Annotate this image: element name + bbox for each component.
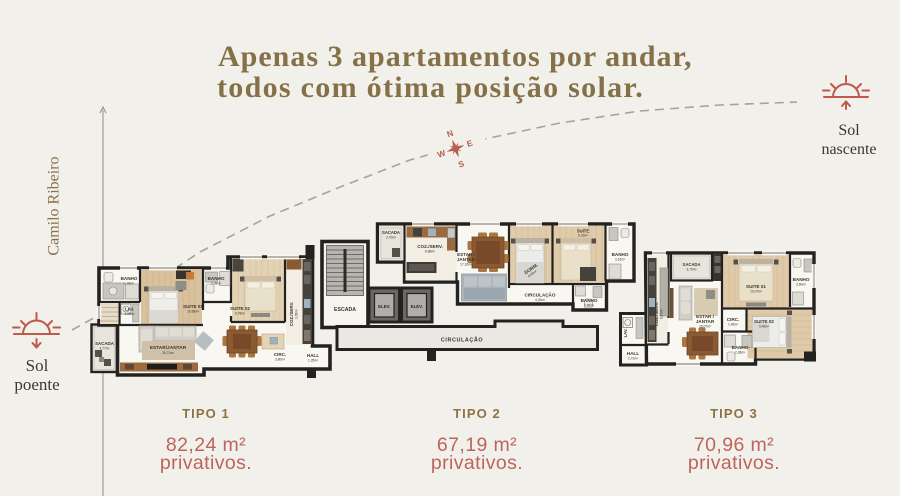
svg-text:10,07m²: 10,07m² [750, 290, 762, 294]
svg-text:Camilo Ribeiro: Camilo Ribeiro [46, 156, 63, 255]
svg-text:BANHO: BANHO [581, 298, 598, 303]
svg-text:BANHO: BANHO [121, 276, 138, 281]
svg-text:BANHO: BANHO [208, 276, 225, 281]
svg-text:LAV.: LAV. [623, 329, 628, 338]
svg-text:SACADA: SACADA [95, 341, 115, 346]
svg-text:3,80m²: 3,80m² [275, 358, 285, 362]
svg-text:HALL: HALL [307, 353, 319, 358]
svg-text:COZ./SERV.: COZ./SERV. [289, 302, 294, 326]
svg-text:3,08m²: 3,08m² [211, 282, 221, 286]
svg-text:privativos.: privativos. [431, 452, 523, 474]
svg-text:ELEV.: ELEV. [378, 304, 390, 309]
svg-text:nascente: nascente [821, 141, 876, 158]
svg-text:8,47m²: 8,47m² [660, 309, 664, 319]
svg-text:8,88m²: 8,88m² [425, 250, 435, 254]
svg-text:16,07m²: 16,07m² [699, 325, 711, 329]
svg-text:3,70m²: 3,70m² [687, 268, 697, 272]
svg-text:9,16m²: 9,16m² [578, 234, 588, 238]
svg-text:Apenas 3 apartamentos por anda: Apenas 3 apartamentos por andar, [218, 40, 693, 73]
svg-text:SUITE 02: SUITE 02 [754, 319, 774, 324]
svg-text:COZ./SERV.: COZ./SERV. [417, 244, 443, 249]
svg-text:poente: poente [14, 375, 59, 394]
svg-text:2,86m²: 2,86m² [584, 304, 594, 308]
svg-text:9,46m²: 9,46m² [759, 325, 769, 329]
svg-text:CIRCULAÇÃO: CIRCULAÇÃO [525, 292, 556, 298]
svg-text:10,68m²: 10,68m² [187, 310, 199, 314]
svg-text:COZ./SERV.: COZ./SERV. [654, 302, 659, 326]
svg-text:9,78m²: 9,78m² [235, 312, 245, 316]
svg-text:2,36m²: 2,36m² [735, 351, 745, 355]
svg-text:1,46m²: 1,46m² [728, 323, 738, 327]
svg-text:todos com ótima posição solar.: todos com ótima posição solar. [217, 71, 644, 104]
svg-text:BANHO: BANHO [732, 345, 749, 350]
svg-text:SUITE 01: SUITE 01 [183, 304, 203, 309]
svg-text:3,16m²: 3,16m² [615, 258, 625, 262]
svg-text:4,02m²: 4,02m² [535, 298, 545, 302]
svg-text:Sol: Sol [26, 356, 49, 375]
svg-text:CIRCULAÇÃO: CIRCULAÇÃO [441, 337, 483, 344]
svg-text:4,77m²: 4,77m² [100, 347, 110, 351]
svg-text:2,70m²: 2,70m² [386, 236, 396, 240]
svg-text:privativos.: privativos. [160, 452, 252, 474]
svg-text:ESCADA: ESCADA [334, 307, 356, 313]
svg-text:BANHO: BANHO [793, 277, 810, 282]
svg-text:CIRC.: CIRC. [727, 317, 740, 322]
svg-text:3,60m²: 3,60m² [796, 283, 806, 287]
svg-text:CIRC.: CIRC. [274, 352, 287, 357]
svg-text:SUITE 01: SUITE 01 [746, 284, 766, 289]
svg-text:privativos.: privativos. [688, 452, 780, 474]
svg-text:1,85m²: 1,85m² [125, 312, 135, 316]
svg-text:SACADA: SACADA [382, 230, 400, 235]
svg-text:BANHO: BANHO [612, 252, 629, 257]
svg-text:1,35m²: 1,35m² [308, 359, 318, 363]
svg-text:JANTAR: JANTAR [457, 257, 476, 262]
svg-text:JANTAR: JANTAR [696, 319, 715, 324]
svg-text:TIPO 2: TIPO 2 [453, 406, 501, 421]
svg-text:ELEV.: ELEV. [411, 304, 423, 309]
svg-text:17,16m²: 17,16m² [460, 263, 472, 267]
svg-text:SACADA: SACADA [683, 262, 701, 267]
svg-text:2,72m²: 2,72m² [628, 357, 638, 361]
svg-text:SUITE 02: SUITE 02 [230, 306, 250, 311]
svg-text:2,48m²: 2,48m² [124, 282, 134, 286]
svg-text:25,71m²: 25,71m² [162, 351, 174, 355]
svg-text:HALL: HALL [627, 351, 639, 356]
svg-text:TIPO 1: TIPO 1 [182, 406, 230, 421]
svg-text:LAV.: LAV. [125, 307, 134, 312]
svg-text:9,38m²: 9,38m² [295, 309, 299, 319]
svg-text:Sol: Sol [838, 122, 860, 139]
svg-text:TIPO 3: TIPO 3 [710, 406, 758, 421]
